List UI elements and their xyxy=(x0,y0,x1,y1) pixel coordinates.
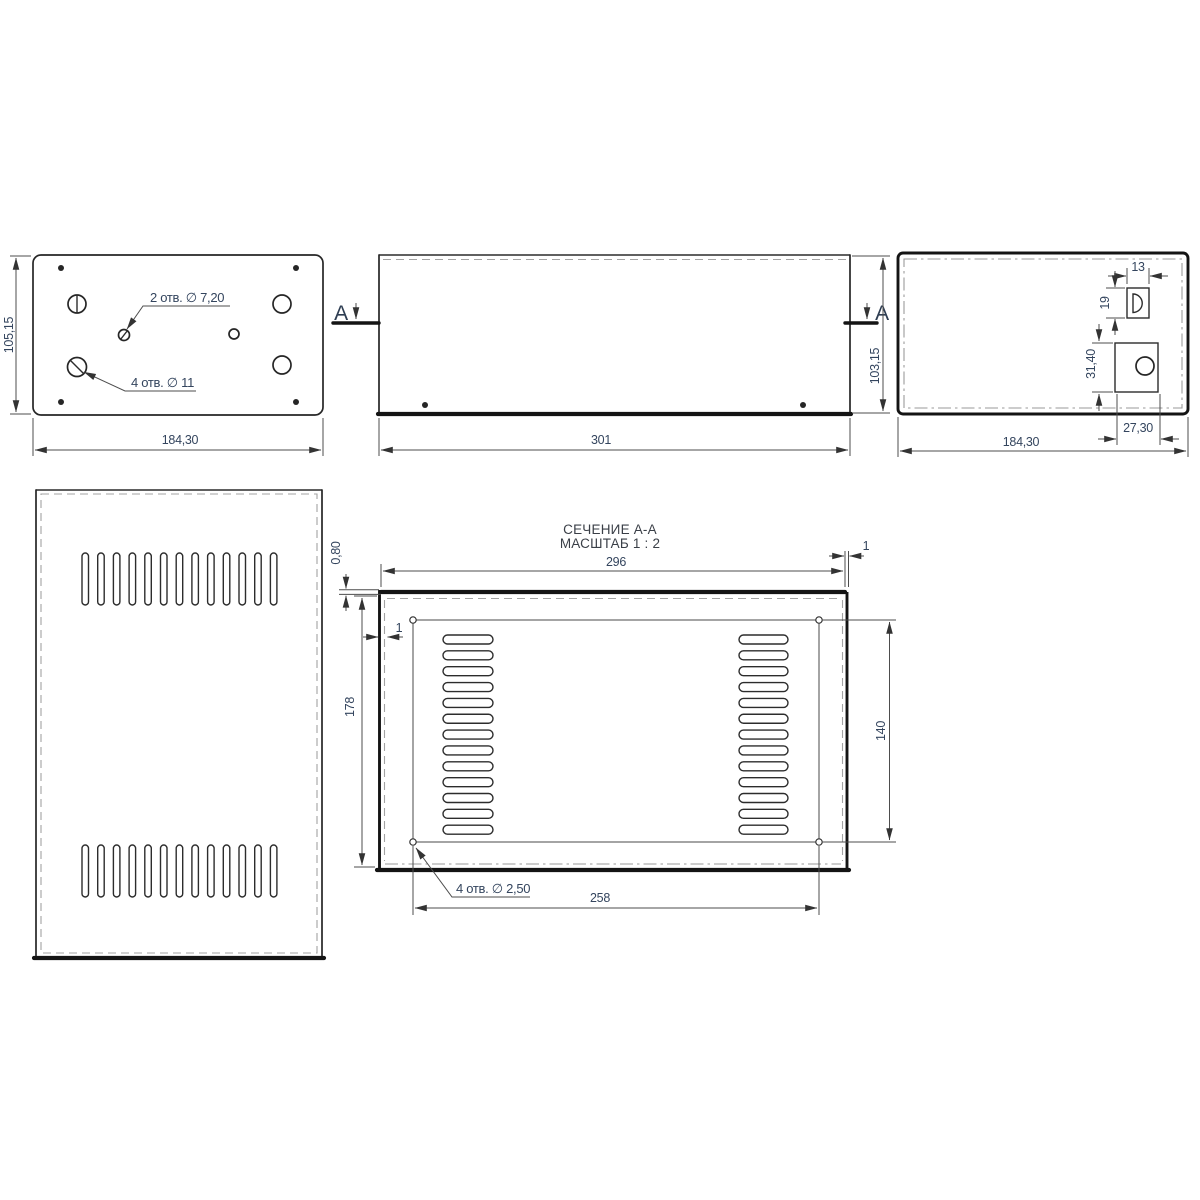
vent-slot xyxy=(739,746,788,755)
vent-slot xyxy=(739,714,788,723)
vent-slot xyxy=(443,698,493,707)
vent-slot xyxy=(739,794,788,803)
vent-slot-row-top xyxy=(82,553,277,605)
callout-corner-holes: 4 отв. ∅ 2,50 xyxy=(416,848,530,897)
drawing-sheet: 2 отв. ∅ 7,20 4 отв. ∅ 11 105,15 184,30 … xyxy=(0,0,1200,1200)
vent-slot xyxy=(443,825,493,834)
vent-slot xyxy=(129,553,136,605)
dimension-text: 178 xyxy=(343,697,357,717)
vent-panel-view xyxy=(34,490,324,958)
notch-semicircle xyxy=(1133,294,1142,313)
dimension-text: 0,80 xyxy=(329,541,343,564)
callout-text: 4 отв. ∅ 2,50 xyxy=(456,881,530,896)
section-scale: МАСШТАБ 1 : 2 xyxy=(560,536,660,551)
vent-slot xyxy=(161,845,168,897)
dimension-text: 184,30 xyxy=(1003,435,1040,449)
vent-slot xyxy=(255,845,262,897)
dimension-text: 140 xyxy=(874,721,888,741)
corner-hole xyxy=(410,617,416,623)
vent-slot xyxy=(176,845,183,897)
dimension-text: 27,30 xyxy=(1123,421,1153,435)
dim-section-width: 296 xyxy=(381,551,845,587)
vent-slot xyxy=(739,730,788,739)
vent-slot xyxy=(145,553,152,605)
corner-hole xyxy=(410,839,416,845)
vent-slot xyxy=(739,809,788,818)
dimension-text: 301 xyxy=(591,433,611,447)
vent-slot xyxy=(739,667,788,676)
dim-cutout-width: 27,30 xyxy=(1098,394,1179,445)
rivet-dot xyxy=(58,265,64,271)
vent-slot xyxy=(739,825,788,834)
vent-slot xyxy=(145,845,152,897)
rivet-dot xyxy=(422,402,428,408)
extension-lines xyxy=(339,590,381,595)
vent-slot xyxy=(270,553,277,605)
end-view: 13 19 31,40 27,30 184,30 xyxy=(898,253,1188,457)
dimension-text: 31,40 xyxy=(1084,349,1098,379)
vent-slot xyxy=(443,651,493,660)
vent-slot xyxy=(129,845,136,897)
dimension-text: 103,15 xyxy=(868,347,882,384)
callout-text: 4 отв. ∅ 11 xyxy=(131,375,194,390)
vent-slot xyxy=(443,762,493,771)
section-view: СЕЧЕНИЕ А-А МАСШТАБ 1 : 2 296 1 xyxy=(329,522,896,915)
switch-notch xyxy=(1127,288,1149,318)
vent-slot xyxy=(208,845,215,897)
rivet-dot xyxy=(293,265,299,271)
vent-slot xyxy=(739,635,788,644)
vent-slot-row-bottom xyxy=(82,845,277,897)
callout-large-holes: 4 отв. ∅ 11 xyxy=(84,372,196,391)
section-title: СЕЧЕНИЕ А-А xyxy=(563,522,657,537)
vent-slot xyxy=(443,794,493,803)
vent-slot xyxy=(255,553,262,605)
vent-slot xyxy=(113,553,120,605)
vent-slot xyxy=(739,651,788,660)
dim-holes-height: 140 xyxy=(822,620,896,842)
dim-gap-left: 1 xyxy=(363,621,403,637)
mount-hole xyxy=(273,356,291,374)
dim-cutout-height: 31,40 xyxy=(1084,324,1113,411)
vent-slot xyxy=(161,553,168,605)
vent-slot xyxy=(739,762,788,771)
vent-slot xyxy=(223,553,230,605)
mount-hole xyxy=(273,295,291,313)
dim-top-view-height: 105,15 xyxy=(2,256,31,414)
dimension-text: 296 xyxy=(606,555,626,569)
vent-slot xyxy=(739,698,788,707)
rivet-dot xyxy=(293,399,299,405)
dimension-text: 105,15 xyxy=(2,316,16,353)
front-view: A A 301 103,15 xyxy=(333,255,890,456)
dim-top-view-width: 184,30 xyxy=(33,418,323,456)
section-letter: A xyxy=(334,302,348,325)
vent-slot xyxy=(443,730,493,739)
vent-slot xyxy=(443,809,493,818)
vent-slot xyxy=(443,635,493,644)
vent-slot xyxy=(270,845,277,897)
section-letter: A xyxy=(875,302,889,325)
vent-slot xyxy=(739,778,788,787)
vent-slot xyxy=(443,778,493,787)
dimension-text: 1 xyxy=(863,539,870,553)
leader-line xyxy=(127,306,230,329)
engineering-drawing: 2 отв. ∅ 7,20 4 отв. ∅ 11 105,15 184,30 … xyxy=(0,0,1200,1200)
dim-front-length: 301 xyxy=(379,418,850,456)
vent-slot xyxy=(98,553,105,605)
extension-lines xyxy=(852,256,890,413)
small-hole xyxy=(229,329,239,339)
hole-mark xyxy=(121,331,128,340)
vent-slot xyxy=(82,553,89,605)
vent-slot xyxy=(239,553,246,605)
connector-hole xyxy=(1136,357,1154,375)
dimension-text: 184,30 xyxy=(162,433,199,447)
vent-slot xyxy=(443,683,493,692)
callout-text: 2 отв. ∅ 7,20 xyxy=(150,290,224,305)
vent-slot xyxy=(192,845,199,897)
vent-slot xyxy=(176,553,183,605)
vent-slot xyxy=(223,845,230,897)
vent-slot xyxy=(98,845,105,897)
vent-slot xyxy=(443,746,493,755)
callout-small-holes: 2 отв. ∅ 7,20 xyxy=(127,290,230,329)
vent-slot xyxy=(82,845,89,897)
section-marker-left: A xyxy=(333,302,379,325)
dimension-text: 19 xyxy=(1098,296,1112,310)
extension-lines xyxy=(1117,394,1160,445)
vent-slot xyxy=(443,714,493,723)
vent-slot xyxy=(113,845,120,897)
section-slot-column-left xyxy=(443,635,493,834)
vent-slot xyxy=(192,553,199,605)
vent-slot xyxy=(739,683,788,692)
dim-front-height: 103,15 xyxy=(852,256,890,413)
corner-hole xyxy=(816,617,822,623)
vent-slot xyxy=(239,845,246,897)
section-slot-column-right xyxy=(739,635,788,834)
dim-wall-thickness: 0,80 xyxy=(329,541,381,611)
rivet-dot xyxy=(58,399,64,405)
vent-slot xyxy=(443,667,493,676)
dim-gap-right: 1 xyxy=(829,539,870,587)
dim-notch-height: 19 xyxy=(1098,271,1125,335)
top-view: 2 отв. ∅ 7,20 4 отв. ∅ 11 105,15 184,30 xyxy=(2,255,323,456)
dimension-text: 258 xyxy=(590,891,610,905)
hidden-inner-edge xyxy=(904,259,1182,408)
corner-hole xyxy=(816,839,822,845)
dimension-text: 13 xyxy=(1131,260,1145,274)
dim-notch-width: 13 xyxy=(1108,260,1168,284)
end-view-outline xyxy=(898,253,1188,414)
rivet-dot xyxy=(800,402,806,408)
vent-slot xyxy=(208,553,215,605)
dimension-text: 1 xyxy=(396,621,403,635)
hole-mark xyxy=(71,361,84,374)
